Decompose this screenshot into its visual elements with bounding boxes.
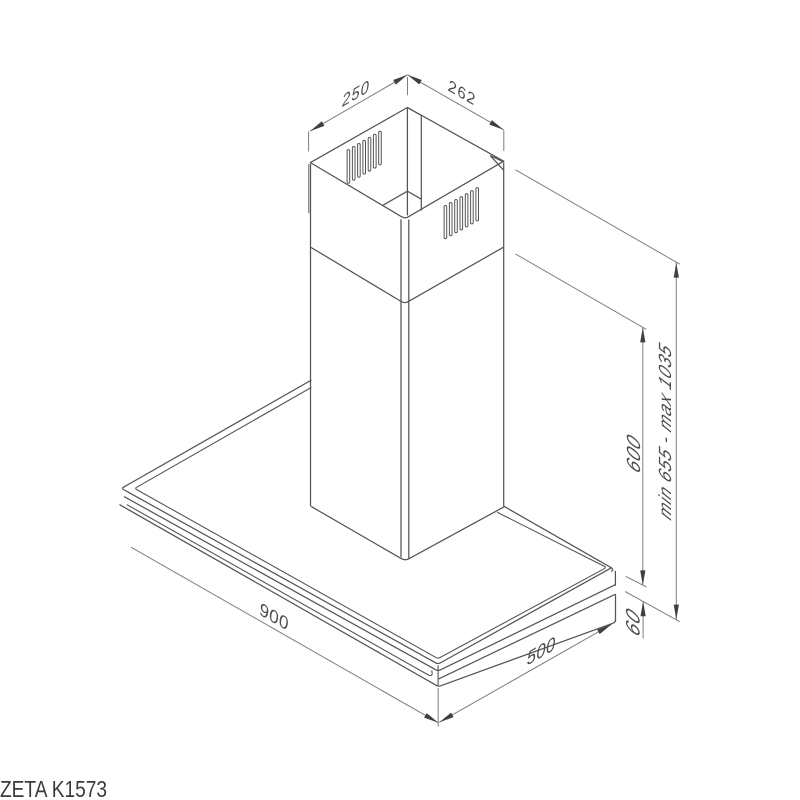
svg-text:60: 60: [623, 604, 644, 641]
svg-text:900: 900: [260, 599, 289, 637]
svg-text:250: 250: [341, 76, 370, 111]
svg-text:500: 500: [527, 633, 556, 671]
svg-text:600: 600: [623, 430, 644, 478]
svg-text:min 655 - max 1035: min 655 - max 1035: [656, 339, 675, 524]
svg-text:ZETA K1573: ZETA K1573: [0, 776, 107, 800]
svg-text:262: 262: [447, 75, 476, 110]
